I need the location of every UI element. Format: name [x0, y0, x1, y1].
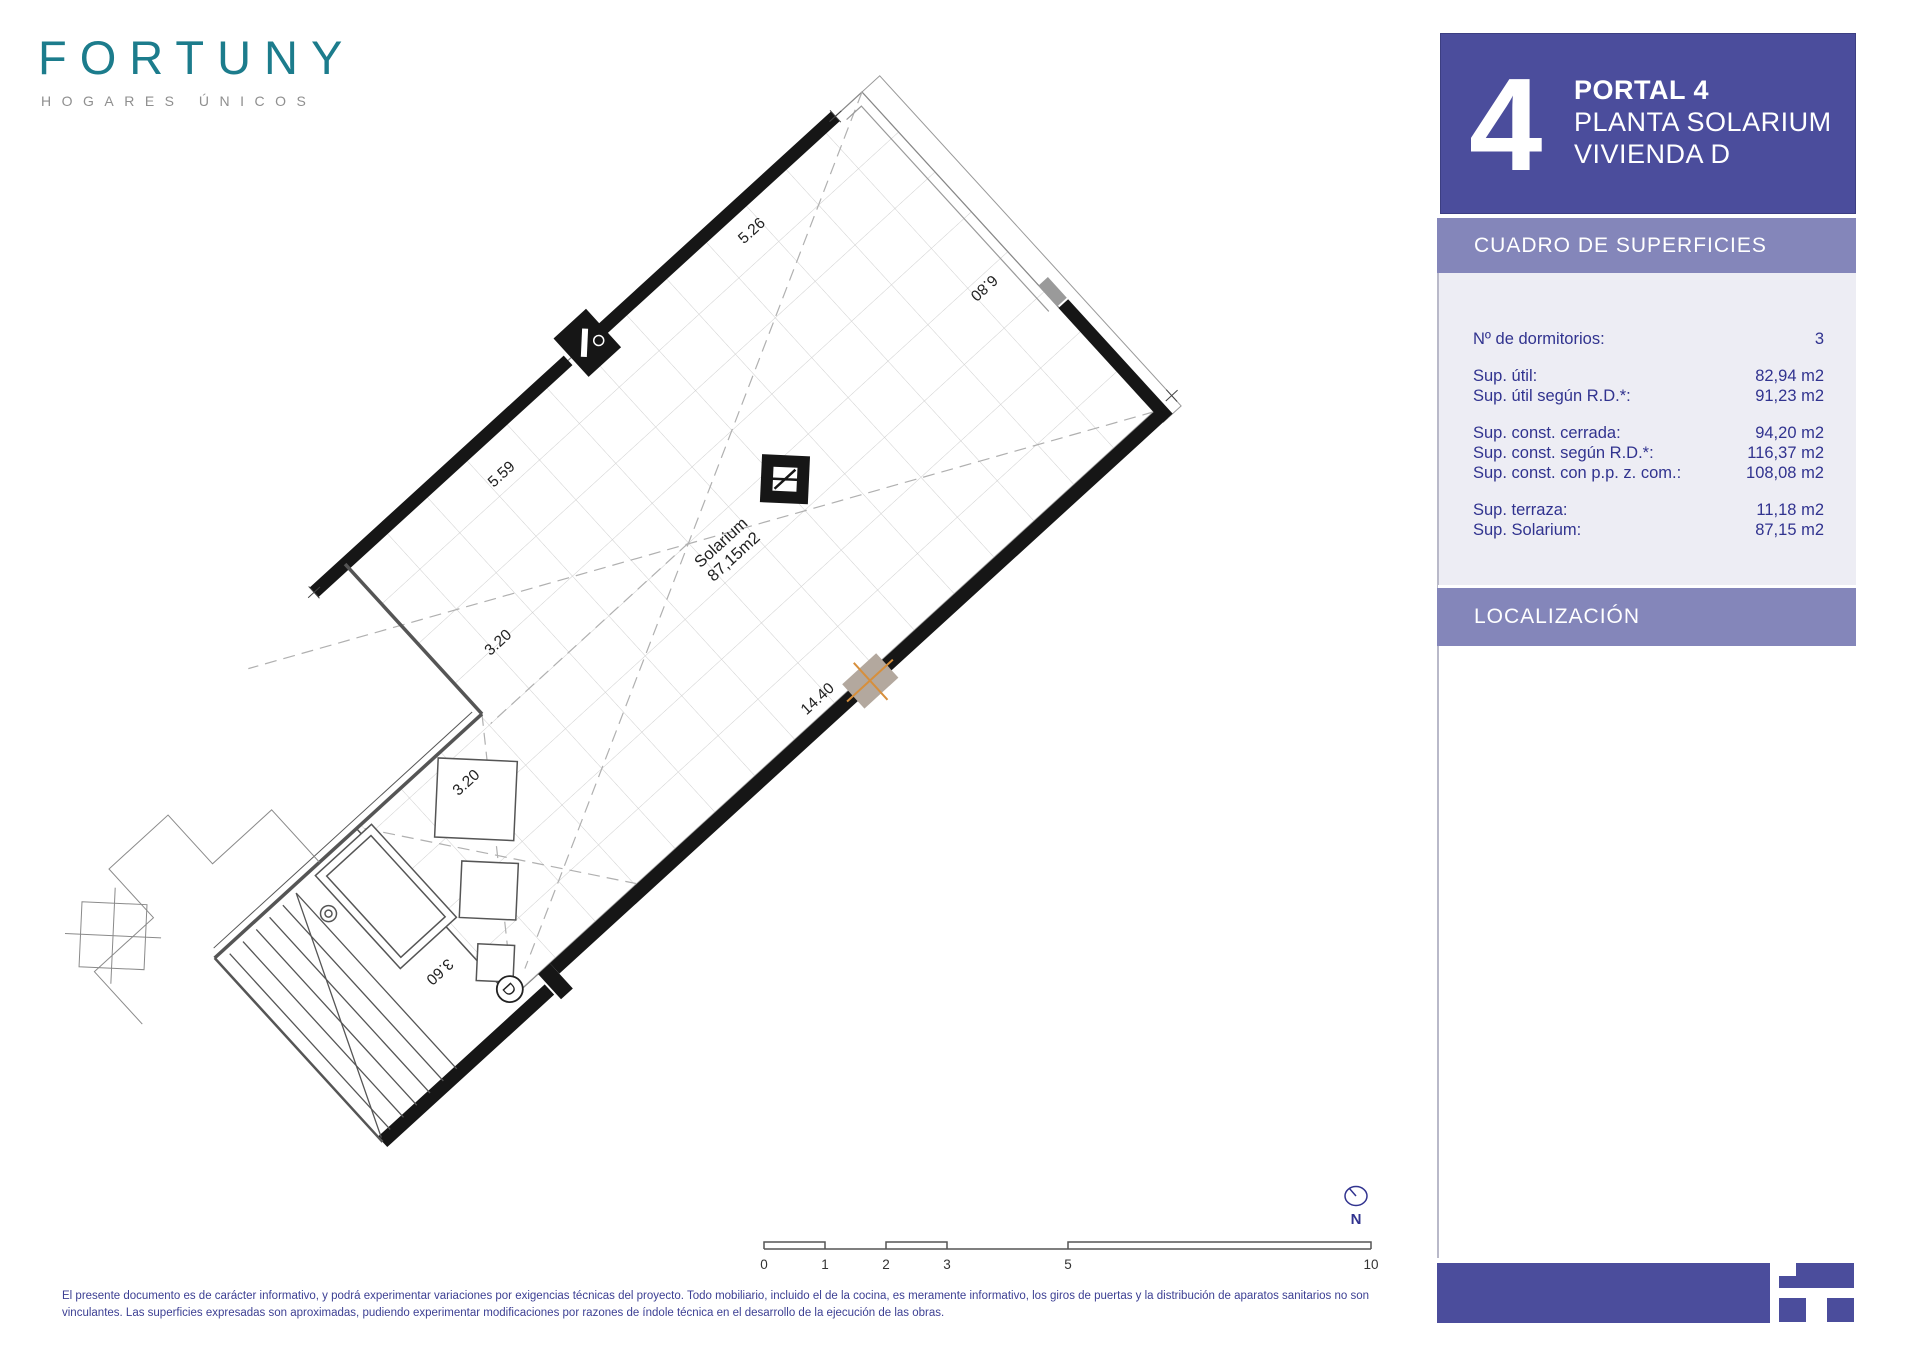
- neighbour-terrace: [44, 761, 320, 1029]
- row-label: Sup. Solarium:: [1473, 520, 1581, 540]
- row-value: 3: [1815, 329, 1824, 349]
- portal-number: 4: [1469, 62, 1542, 187]
- fortuny-mark-icon: [1796, 1263, 1854, 1276]
- row-value: 91,23 m2: [1755, 386, 1824, 406]
- surfaces-title: CUADRO DE SUPERFICIES: [1474, 234, 1767, 258]
- scale-tick-1: 1: [821, 1257, 829, 1272]
- north-arrow-icon: N: [1345, 1187, 1367, 1229]
- fortuny-mark-icon: [1827, 1298, 1854, 1322]
- fortuny-mark-icon: [1779, 1276, 1854, 1288]
- disclaimer-text: El presente documento es de carácter inf…: [62, 1288, 1462, 1322]
- unit-header: 4 PORTAL 4 PLANTA SOLARIUM VIVIENDA D: [1440, 33, 1856, 214]
- scale-bar: 0 1 2 3 5 10: [760, 1242, 1378, 1272]
- scale-tick-2: 2: [882, 1257, 890, 1272]
- row-label: Sup. const. cerrada:: [1473, 423, 1621, 443]
- dwelling-title: VIVIENDA D: [1574, 138, 1832, 170]
- scale-tick-3: 3: [943, 1257, 951, 1272]
- disclaimer-line: El presente documento es de carácter inf…: [62, 1288, 1462, 1305]
- table-row: Sup. terraza: 11,18 m2: [1473, 500, 1824, 520]
- floor-title: PLANTA SOLARIUM: [1574, 106, 1832, 138]
- table-row: Sup. útil: 82,94 m2: [1473, 366, 1824, 386]
- vent-icon: [760, 454, 810, 504]
- scale-tick-10: 10: [1363, 1257, 1378, 1272]
- table-row: Sup. const. con p.p. z. com.: 108,08 m2: [1473, 463, 1824, 483]
- localization-title: LOCALIZACIÓN: [1474, 605, 1640, 629]
- row-value: 116,37 m2: [1747, 443, 1824, 463]
- row-value: 108,08 m2: [1746, 463, 1824, 483]
- localization-header: LOCALIZACIÓN: [1437, 588, 1856, 646]
- sidebar-footer-band: [1437, 1263, 1770, 1323]
- localization-panel: [1438, 646, 1856, 1258]
- row-label: Sup. terraza:: [1473, 500, 1567, 520]
- plan-sheet: FORTUNY HOGARES ÚNICOS: [0, 0, 1920, 1358]
- row-label: Sup. útil según R.D.*:: [1473, 386, 1631, 406]
- table-row: Sup. const. según R.D.*: 116,37 m2: [1473, 443, 1824, 463]
- solarium-plan: 5.26 6.80 5.59 3.20 14.40 3.20 3.60 Sola…: [0, 51, 1201, 1224]
- north-label: N: [1351, 1211, 1362, 1228]
- surfaces-table: Nº de dormitorios: 3 Sup. útil: 82,94 m2…: [1438, 273, 1856, 585]
- row-label: Sup. útil:: [1473, 366, 1537, 386]
- row-value: 94,20 m2: [1755, 423, 1824, 443]
- row-value: 82,94 m2: [1755, 366, 1824, 386]
- row-label: Sup. const. con p.p. z. com.:: [1473, 463, 1681, 483]
- dimension-lower: 3.60: [422, 955, 456, 988]
- fortuny-mark-icon: [1779, 1298, 1806, 1322]
- surfaces-header: CUADRO DE SUPERFICIES: [1437, 218, 1856, 273]
- table-row: Sup. Solarium: 87,15 m2: [1473, 520, 1824, 540]
- scale-tick-0: 0: [760, 1257, 768, 1272]
- row-label: Sup. const. según R.D.*:: [1473, 443, 1654, 463]
- table-row: Sup. const. cerrada: 94,20 m2: [1473, 423, 1824, 443]
- table-row: Nº de dormitorios: 3: [1473, 329, 1824, 349]
- portal-title: PORTAL 4: [1574, 74, 1832, 106]
- row-label: Nº de dormitorios:: [1473, 329, 1605, 349]
- scale-tick-5: 5: [1064, 1257, 1072, 1272]
- disclaimer-line: vinculantes. Las superficies expresadas …: [62, 1305, 1462, 1322]
- row-value: 87,15 m2: [1755, 520, 1824, 540]
- row-value: 11,18 m2: [1756, 500, 1824, 520]
- table-row: Sup. útil según R.D.*: 91,23 m2: [1473, 386, 1824, 406]
